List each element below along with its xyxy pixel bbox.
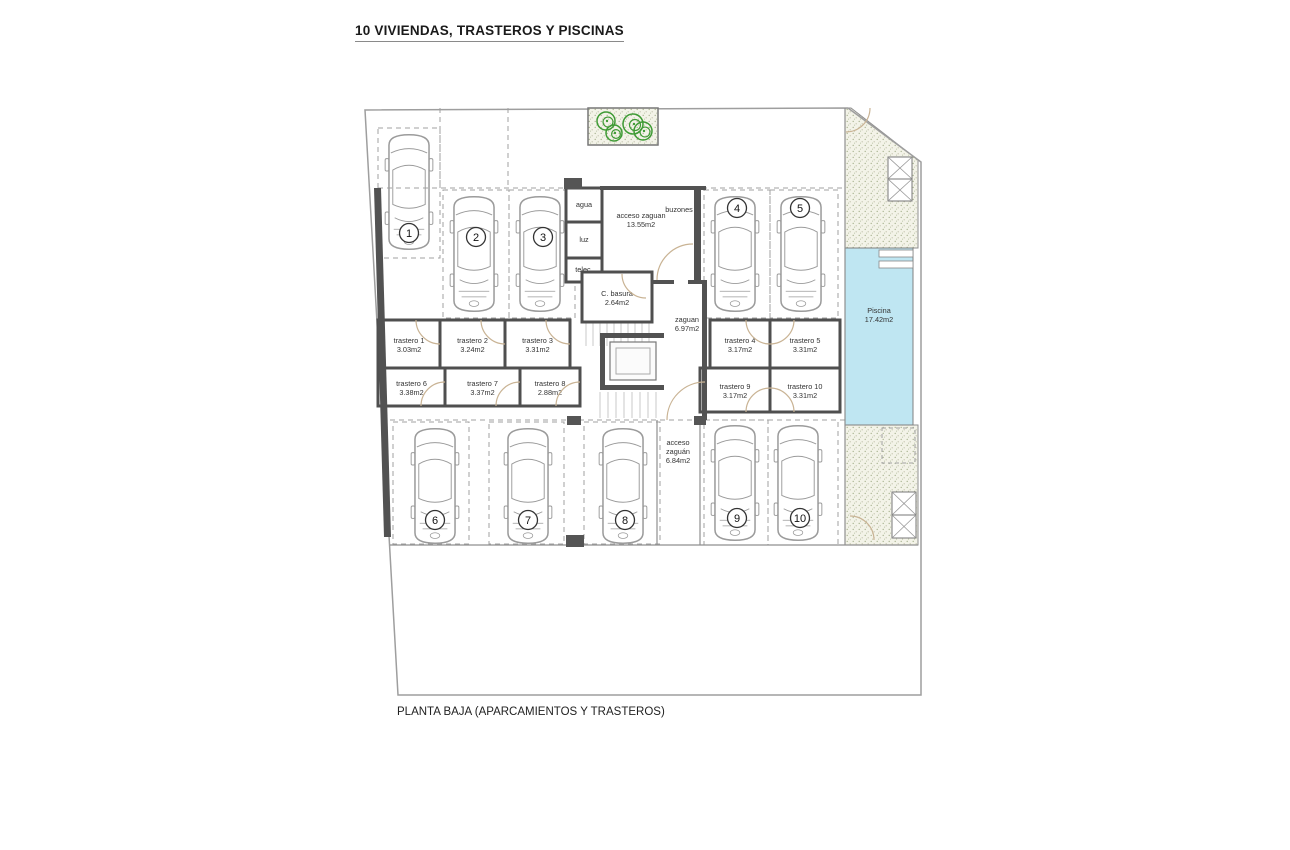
room-area: 3.17m2: [723, 391, 747, 400]
pillar: [694, 416, 706, 425]
plan-svg: agualuztelec.C. basura2.64m2trastero 13.…: [0, 0, 1290, 850]
room-area: 3.24m2: [460, 345, 484, 354]
tree-icon: [606, 120, 608, 122]
room-label: trastero 8: [535, 379, 566, 388]
pillar: [564, 178, 582, 189]
room-area: 3.31m2: [525, 345, 549, 354]
room-area: 2.64m2: [605, 298, 629, 307]
parking-number: 5: [797, 203, 803, 215]
parking-space: [443, 190, 509, 318]
pillar: [567, 416, 581, 425]
piscina-label: Piscina17.42m2: [865, 306, 893, 324]
parking-number: 9: [734, 513, 740, 525]
room-label: agua: [576, 200, 593, 209]
room-area: 3.38m2: [399, 388, 423, 397]
room-area: 3.03m2: [397, 345, 421, 354]
parking-number: 4: [734, 203, 740, 215]
parking-number: 2: [473, 232, 479, 244]
parking-number: 7: [525, 515, 531, 527]
room-area: 3.31m2: [793, 391, 817, 400]
wall: [702, 282, 707, 420]
pillar: [566, 535, 584, 547]
acceso-zaguan-sur-label: accesozaguán6.84m2: [666, 438, 690, 465]
floor-plan-canvas: agualuztelec.C. basura2.64m2trastero 13.…: [0, 0, 1290, 850]
acceso-zaguan-label: acceso zaguan13.55m2: [616, 211, 665, 229]
zaguan-label: zaguan6.97m2: [675, 315, 699, 333]
car: [516, 197, 564, 311]
room-area: 3.37m2: [470, 388, 494, 397]
room-label: trastero 3: [522, 336, 553, 345]
parking-number: 3: [540, 232, 546, 244]
room-label: trastero 4: [725, 336, 756, 345]
wall: [652, 280, 674, 284]
parking-number: 8: [622, 515, 628, 527]
room-label: trastero 9: [720, 382, 751, 391]
pool-step: [879, 250, 913, 257]
elevator-wall: [600, 385, 664, 390]
tree-icon: [614, 132, 616, 134]
buzones-label: buzones: [665, 205, 693, 214]
wall: [600, 186, 706, 190]
room-label: trastero 10: [788, 382, 823, 391]
drawing-caption: PLANTA BAJA (APARCAMIENTOS Y TRASTEROS): [397, 706, 665, 718]
tree-icon: [643, 130, 645, 132]
room-label: trastero 2: [457, 336, 488, 345]
parking-number: 1: [406, 228, 412, 240]
room-label: trastero 6: [396, 379, 427, 388]
car: [450, 197, 498, 311]
room-label: trastero 7: [467, 379, 498, 388]
elevator-wall: [600, 333, 664, 338]
wall: [688, 280, 707, 284]
wall: [694, 190, 701, 280]
pool: [845, 248, 913, 425]
floor-plan-page: 10 VIVIENDAS, TRASTEROS Y PISCINAS agual…: [0, 0, 1290, 850]
room-label: luz: [579, 235, 589, 244]
room-label: trastero 5: [790, 336, 821, 345]
elevator-wall: [600, 333, 605, 390]
pool-step: [879, 261, 913, 268]
parking-number: 10: [794, 513, 806, 525]
door-arc: [657, 244, 693, 280]
room-area: 3.31m2: [793, 345, 817, 354]
parking-number: 6: [432, 515, 438, 527]
room-label: trastero 1: [394, 336, 425, 345]
tree-icon: [633, 123, 635, 125]
room-area: 3.17m2: [728, 345, 752, 354]
